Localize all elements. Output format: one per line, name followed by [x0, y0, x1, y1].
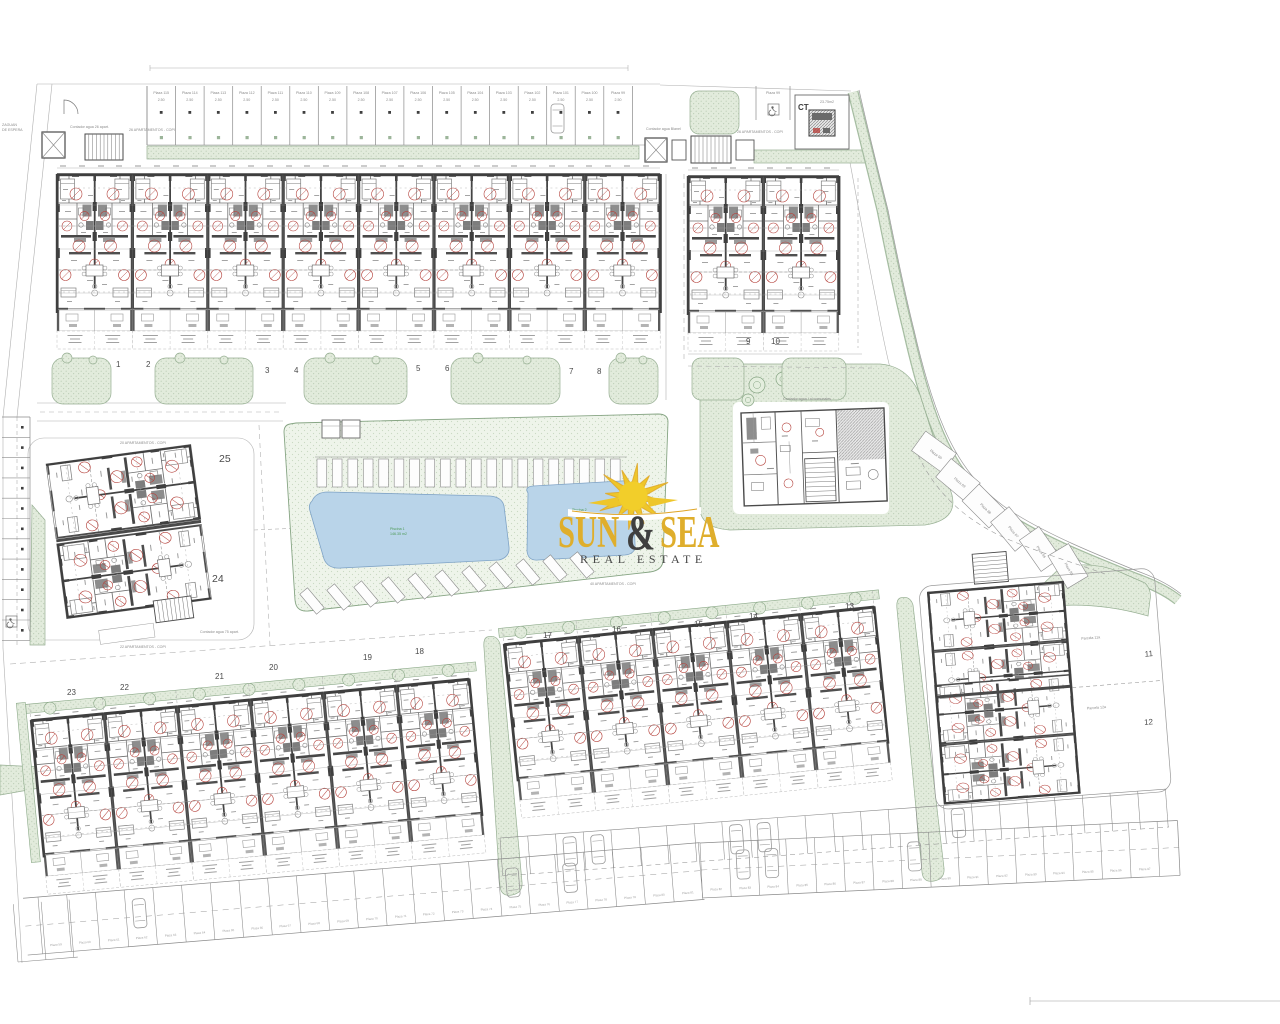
svg-text:Plaza 86: Plaza 86 — [824, 882, 836, 887]
svg-text:2.50: 2.50 — [329, 98, 336, 102]
svg-text:2.50: 2.50 — [415, 98, 422, 102]
svg-text:18: 18 — [415, 647, 424, 656]
svg-text:14: 14 — [749, 612, 758, 621]
svg-text:Plaza 102: Plaza 102 — [524, 91, 540, 95]
svg-text:Plaza 91: Plaza 91 — [967, 875, 979, 880]
svg-text:Plaza 88: Plaza 88 — [882, 879, 894, 884]
svg-text:SEA: SEA — [660, 508, 720, 557]
svg-text:Plaza 108: Plaza 108 — [353, 91, 369, 95]
svg-text:2.50: 2.50 — [158, 98, 165, 102]
svg-text:26 APARTAMENTOS - COPI: 26 APARTAMENTOS - COPI — [129, 128, 175, 132]
svg-text:146.35 m2: 146.35 m2 — [390, 532, 407, 536]
svg-text:22: 22 — [120, 683, 129, 692]
svg-text:Plaza 96: Plaza 96 — [1110, 868, 1122, 873]
svg-text:Contador agua 26 apart.: Contador agua 26 apart. — [70, 125, 109, 129]
svg-text:Plaza 110: Plaza 110 — [296, 91, 312, 95]
svg-text:2.50: 2.50 — [300, 98, 307, 102]
svg-text:Plaza 106: Plaza 106 — [410, 91, 426, 95]
svg-text:Plaza 105: Plaza 105 — [439, 91, 455, 95]
svg-text:9: 9 — [746, 337, 751, 346]
svg-text:Plaza 111: Plaza 111 — [268, 91, 283, 95]
svg-text:Plaza 94: Plaza 94 — [1053, 871, 1065, 876]
svg-text:17: 17 — [543, 631, 552, 640]
svg-text:Plaza 109: Plaza 109 — [325, 91, 341, 95]
svg-text:6: 6 — [445, 364, 450, 373]
svg-text:8: 8 — [597, 367, 602, 376]
svg-text:16: 16 — [612, 625, 621, 634]
svg-text:2.50: 2.50 — [215, 98, 222, 102]
svg-text:13: 13 — [845, 602, 854, 611]
svg-text:22 APARTAMENTOS - COPI: 22 APARTAMENTOS - COPI — [120, 645, 166, 649]
svg-text:Plaza 87: Plaza 87 — [853, 880, 865, 885]
svg-text:REAL ESTATE: REAL ESTATE — [580, 552, 707, 566]
svg-text:2.50: 2.50 — [186, 98, 193, 102]
svg-text:2.50: 2.50 — [615, 98, 622, 102]
svg-text:Piscina 1: Piscina 1 — [390, 527, 405, 531]
svg-text:23: 23 — [67, 688, 76, 697]
svg-text:Contador agua / al comunales: Contador agua / al comunales — [783, 397, 831, 401]
svg-text:20: 20 — [269, 663, 278, 672]
svg-text:2.50: 2.50 — [272, 98, 279, 102]
svg-text:ZAGUAN: ZAGUAN — [2, 123, 17, 127]
svg-text:2.50: 2.50 — [472, 98, 479, 102]
svg-text:2.50: 2.50 — [243, 98, 250, 102]
svg-text:15: 15 — [694, 620, 703, 629]
svg-text:11: 11 — [1144, 649, 1154, 659]
svg-text:Plaza 115: Plaza 115 — [153, 91, 169, 95]
svg-text:2.50: 2.50 — [529, 98, 536, 102]
svg-text:Contador agua Blanel: Contador agua Blanel — [646, 127, 681, 131]
svg-text:2.50: 2.50 — [358, 98, 365, 102]
svg-text:Plaza 113: Plaza 113 — [210, 91, 226, 95]
svg-text:5: 5 — [416, 364, 421, 373]
svg-text:Plaza 83: Plaza 83 — [739, 886, 751, 891]
svg-text:2.50: 2.50 — [557, 98, 564, 102]
svg-text:2.50: 2.50 — [500, 98, 507, 102]
svg-text:2: 2 — [146, 360, 151, 369]
svg-text:Plaza 104: Plaza 104 — [467, 91, 483, 95]
svg-text:Plaza 82: Plaza 82 — [710, 887, 722, 892]
svg-text:24: 24 — [212, 573, 224, 585]
svg-text:CT: CT — [798, 103, 809, 112]
svg-text:Plaza 103: Plaza 103 — [496, 91, 512, 95]
svg-text:10: 10 — [771, 337, 780, 346]
svg-text:Plaza 85: Plaza 85 — [796, 883, 808, 888]
svg-text:Plaza 95: Plaza 95 — [1082, 869, 1094, 874]
svg-text:DE ESPERA: DE ESPERA — [2, 128, 23, 132]
svg-text:21: 21 — [215, 672, 224, 681]
svg-text:20 APARTAMENTOS - COPI: 20 APARTAMENTOS - COPI — [120, 441, 166, 445]
svg-text:Plaza 100: Plaza 100 — [582, 91, 598, 95]
svg-text:Plaza 112: Plaza 112 — [239, 91, 255, 95]
svg-text:12: 12 — [1144, 717, 1154, 727]
svg-text:2.50: 2.50 — [386, 98, 393, 102]
svg-text:2.50: 2.50 — [443, 98, 450, 102]
svg-text:Plaza 89: Plaza 89 — [910, 878, 922, 883]
svg-text:25: 25 — [219, 453, 231, 465]
svg-text:Plaza 90: Plaza 90 — [939, 876, 951, 881]
svg-text:Plaza 84: Plaza 84 — [767, 884, 779, 889]
svg-text:3: 3 — [265, 366, 270, 375]
svg-text:Plaza 97: Plaza 97 — [1139, 867, 1151, 872]
svg-text:19: 19 — [363, 653, 372, 662]
svg-text:1: 1 — [116, 360, 121, 369]
svg-text:Plaza 99: Plaza 99 — [766, 91, 780, 95]
svg-text:40 APARTAMENTOS - COPI: 40 APARTAMENTOS - COPI — [590, 582, 636, 586]
svg-text:SUN: SUN — [558, 508, 619, 557]
svg-text:23.75m2: 23.75m2 — [820, 100, 834, 104]
svg-text:Plaza 114: Plaza 114 — [182, 91, 198, 95]
svg-text:Contador agua 75 apart.: Contador agua 75 apart. — [200, 630, 239, 634]
svg-text:7: 7 — [569, 367, 574, 376]
svg-text:Plaza 92: Plaza 92 — [996, 874, 1008, 879]
svg-text:Plaza 107: Plaza 107 — [382, 91, 398, 95]
svg-text:26 APARTAMENTOS - COPI: 26 APARTAMENTOS - COPI — [737, 130, 783, 134]
svg-text:Plaza 101: Plaza 101 — [553, 91, 569, 95]
svg-text:2.50: 2.50 — [586, 98, 593, 102]
svg-text:Plaza 93: Plaza 93 — [1025, 872, 1037, 877]
svg-text:Plaza 99: Plaza 99 — [611, 91, 625, 95]
svg-text:4: 4 — [294, 366, 299, 375]
